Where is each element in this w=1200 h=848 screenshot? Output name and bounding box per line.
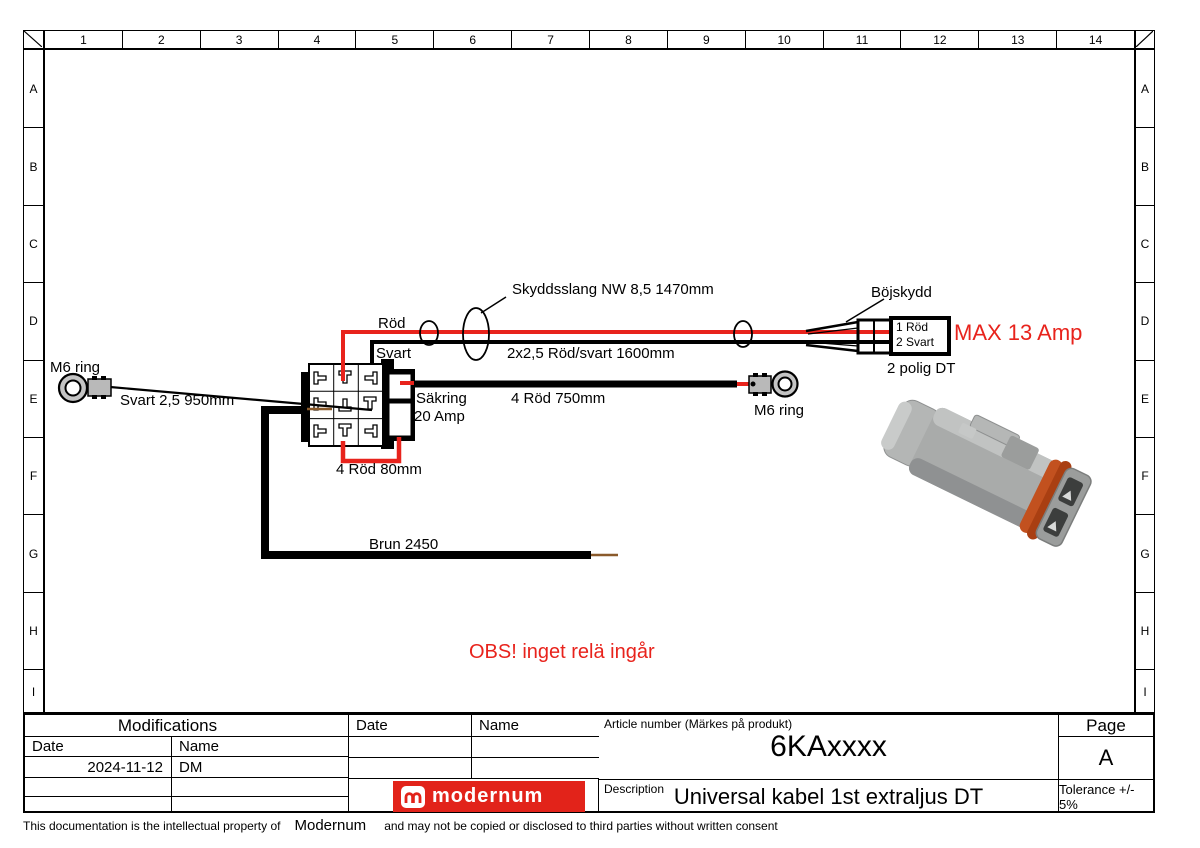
title-block: Modifications Date Name 2024-11-12 DM Da… <box>23 713 1155 813</box>
fuse-holder <box>385 369 415 441</box>
modernum-logo: modernum <box>393 781 585 812</box>
page-label: Page <box>1059 715 1153 737</box>
label-polig-dt: 2 polig DT <box>887 360 955 377</box>
leader-skyddsslang <box>481 297 506 313</box>
approval-cell <box>349 758 472 779</box>
m6-ring-terminal-left <box>59 374 111 402</box>
approval-date-header: Date <box>349 715 472 737</box>
page-value: A <box>1059 737 1153 780</box>
modernum-logo-icon <box>401 786 425 808</box>
label-bojskydd: Böjskydd <box>871 284 932 301</box>
mod-row-empty <box>25 778 172 797</box>
logo-zone: modernum <box>349 779 599 813</box>
bend-protector <box>806 320 891 353</box>
label-max-amp: MAX 13 Amp <box>954 320 1082 345</box>
mod-row-date: 2024-11-12 <box>25 757 172 778</box>
label-brun-2450: Brun 2450 <box>369 536 438 553</box>
article-number-label: Article number (Märkes på produkt) <box>604 717 792 731</box>
drawing-sheet: 1 2 3 4 5 6 7 8 9 10 11 12 13 14 A B C D… <box>0 0 1200 848</box>
mod-row-empty <box>25 797 172 813</box>
mod-date-header: Date <box>25 737 172 757</box>
footer-text-1: This documentation is the intellectual p… <box>23 819 280 833</box>
label-m6-ring-right: M6 ring <box>754 402 804 419</box>
label-obs-warning: OBS! inget relä ingår <box>469 641 655 664</box>
label-skyddsslang: Skyddsslang NW 8,5 1470mm <box>512 281 714 298</box>
footer-text-2: and may not be copied or disclosed to th… <box>384 819 778 833</box>
revision-cell <box>310 757 349 778</box>
revision-cell <box>310 778 349 797</box>
modifications-title: Modifications <box>25 715 310 737</box>
approval-name-header: Name <box>472 715 599 737</box>
label-svart-950: Svart 2,5 950mm <box>120 392 234 409</box>
article-number-cell: Article number (Märkes på produkt) 6KAxx… <box>599 715 1059 780</box>
label-sakring: Säkring <box>416 390 467 407</box>
label-par-1600: 2x2,5 Röd/svart 1600mm <box>507 345 675 362</box>
article-number-value: 6KAxxxx <box>770 730 887 764</box>
revision-cell <box>310 715 349 737</box>
footer-legal: This documentation is the intellectual p… <box>23 817 1173 834</box>
label-svart: Svart <box>376 345 411 362</box>
mod-name-header: Name <box>172 737 310 757</box>
label-rod-80: 4 Röd 80mm <box>336 461 422 478</box>
approval-cell <box>472 737 599 758</box>
footer-company: Modernum <box>294 817 366 834</box>
label-rod: Röd <box>378 315 406 332</box>
modernum-logo-text: modernum <box>432 785 543 808</box>
dt-connector-photo <box>871 382 1096 552</box>
approval-cell <box>349 737 472 758</box>
label-sakring-amp: 20 Amp <box>414 408 465 425</box>
mod-row-empty <box>172 797 310 813</box>
label-pin1: 1 Röd <box>896 321 928 335</box>
approval-cell <box>472 758 599 779</box>
description-label: Description <box>604 782 664 796</box>
label-rod-750: 4 Röd 750mm <box>511 390 605 407</box>
m6-ring-terminal-right <box>749 372 798 397</box>
mod-row-name: DM <box>172 757 310 778</box>
description-value: Universal kabel 1st extraljus DT <box>674 784 983 810</box>
label-pin2: 2 Svart <box>896 336 934 350</box>
label-m6-ring-left: M6 ring <box>50 359 100 376</box>
revision-cell <box>310 737 349 757</box>
mod-row-empty <box>172 778 310 797</box>
tolerance-value: Tolerance +/- 5% <box>1059 780 1153 813</box>
description-cell: Description Universal kabel 1st extralju… <box>599 780 1059 813</box>
